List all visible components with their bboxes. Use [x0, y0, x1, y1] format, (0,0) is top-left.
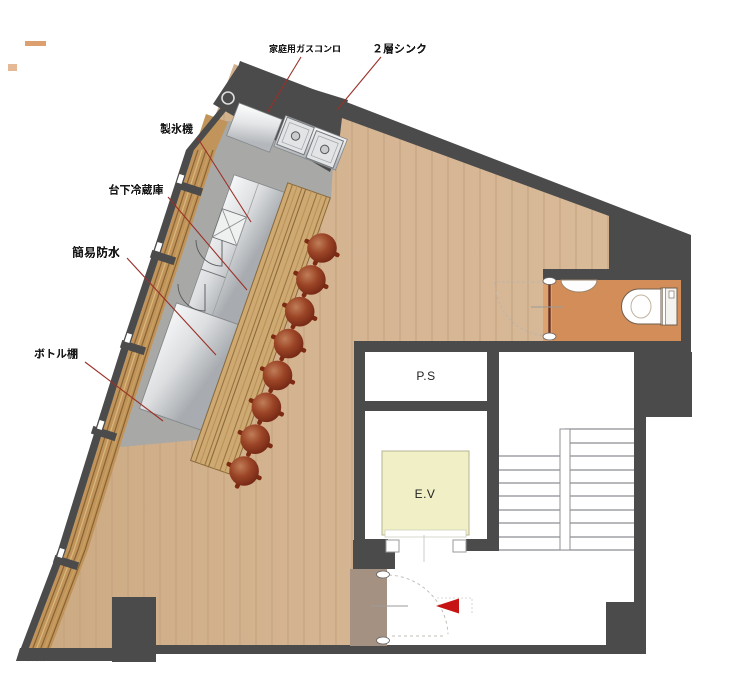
- svg-text:E.V: E.V: [415, 487, 436, 501]
- svg-text:P.S: P.S: [416, 369, 435, 383]
